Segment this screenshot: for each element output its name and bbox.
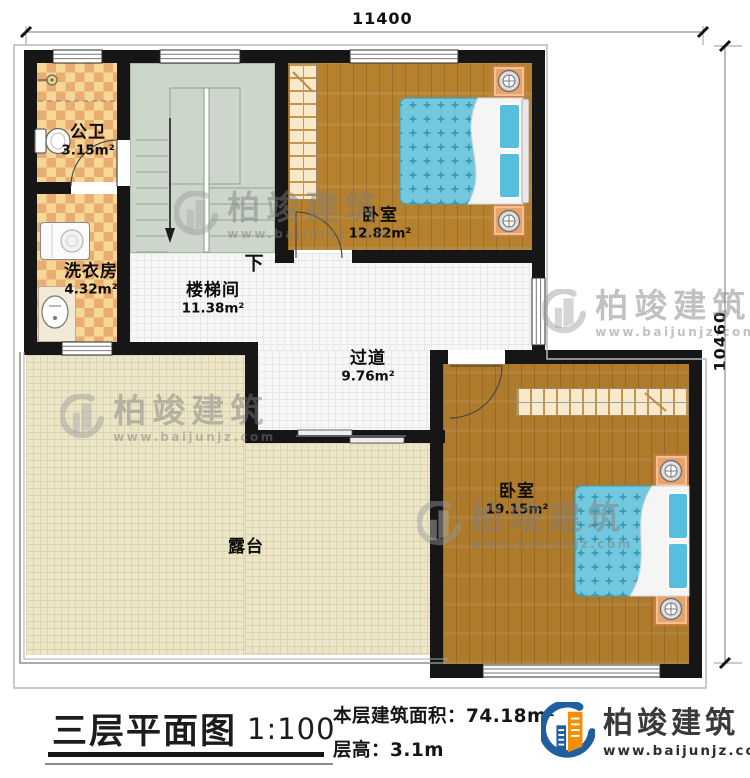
pillow xyxy=(499,104,520,149)
room-label-corridor: 过道 9.76m² xyxy=(341,349,394,386)
brand-name: 柏竣建筑 xyxy=(603,707,750,740)
bed-bedroom-right xyxy=(575,486,689,596)
pillow xyxy=(499,153,520,198)
room-label-stairwell: 楼梯间 11.38m² xyxy=(182,281,245,318)
plan-title: 三层平面图 xyxy=(52,703,237,754)
sliding-door xyxy=(296,430,406,443)
bed-bedroom-top xyxy=(400,98,529,204)
title-underline-thick xyxy=(48,752,324,757)
room-label-bedroom-top: 卧室 12.82m² xyxy=(349,206,412,243)
bed-headboard xyxy=(522,99,529,203)
room-label-laundry: 洗衣房 4.32m² xyxy=(64,262,118,299)
room-label-bedroom-right: 卧室 19.15m² xyxy=(486,482,549,519)
brand-block: 柏竣建筑 www.baijunjz.com xyxy=(541,702,750,764)
shower-head-icon xyxy=(38,75,57,85)
plan-linework-overlay xyxy=(0,0,750,778)
room-label-bathroom: 公卫 3.15m² xyxy=(61,123,114,160)
dimension-top-line xyxy=(21,26,708,45)
title-underline-thin xyxy=(45,763,333,765)
floor-height-value: 3.1m xyxy=(390,740,444,761)
floor-height-label: 层高： xyxy=(333,740,390,761)
floor-area-row: 本层建筑面积：74.18m² xyxy=(333,702,555,728)
laundry-sink-icon xyxy=(42,296,68,328)
door-bedroom-right xyxy=(450,366,502,418)
brand-logo-icon xyxy=(541,702,595,764)
floor-area-label: 本层建筑面积： xyxy=(333,706,466,727)
stair-direction-arrow xyxy=(165,118,175,243)
pillow xyxy=(668,543,688,589)
dimension-right-line xyxy=(714,41,742,668)
pillow xyxy=(668,493,688,539)
washing-machine-drum xyxy=(52,224,83,258)
stairs-down-label: 下 xyxy=(244,249,263,276)
stair-handrail xyxy=(204,88,209,252)
plan-scale: 1:100 xyxy=(247,712,336,746)
floor-plan-page: { "dims": { "top": "11400", "right": "10… xyxy=(0,0,750,778)
room-label-terrace: 露台 xyxy=(228,537,264,557)
stairs xyxy=(136,88,274,252)
door-bedroom-top xyxy=(296,212,342,258)
floor-height-row: 层高：3.1m xyxy=(333,736,444,762)
brand-url: www.baijunjz.com xyxy=(603,743,750,759)
terrace-railing xyxy=(20,352,448,663)
